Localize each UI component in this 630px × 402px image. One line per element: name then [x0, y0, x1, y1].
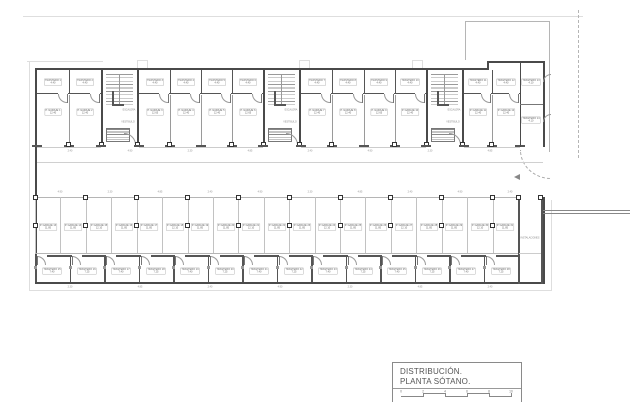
band-edge-1: [139, 147, 263, 148]
dim-top-5: 4.90: [368, 150, 373, 152]
dim-bot-4: 2.30: [348, 286, 353, 288]
storage-label: TRASTERO 197.40: [181, 268, 200, 275]
trastero-door-leaf-2-2: [393, 94, 394, 103]
parking-label: P. GARAJE 2712.10: [395, 224, 413, 231]
sideblock-div: [520, 104, 543, 105]
wall-top: [35, 68, 487, 70]
wall-ext-right-2: [543, 213, 630, 214]
dim-top-4: 2.40: [308, 150, 313, 152]
trastero-label: TRASTERO 64.40: [239, 79, 257, 86]
parking-label: P. GARAJE 2412.10: [318, 224, 336, 231]
trastero-door-arc-2-2: [384, 94, 393, 103]
boundary-topright-h: [465, 21, 550, 22]
storage-label: TRASTERO 237.40: [319, 268, 338, 275]
core-wall-l-2: [426, 69, 428, 147]
parking-col-top-2: [83, 195, 88, 200]
trastero-label: TRASTERO 84.40: [339, 79, 357, 86]
wall-bottom: [35, 282, 545, 284]
trastero-door-leaf-0-1: [99, 94, 100, 103]
vestibulo-label-0: VESTIBULO: [121, 121, 134, 123]
garaje-label: P. GARAJE 1212.40: [497, 109, 515, 116]
garaje-label: P. GARAJE 512.40: [208, 109, 225, 116]
property-line-top: [23, 16, 583, 17]
parking-label: P. GARAJE 2811.85: [420, 224, 438, 231]
parking-label: P. GARAJE 1812.10: [166, 224, 184, 231]
trastero-door-arc-2-1: [353, 94, 362, 103]
parking-col-mid-6: [185, 223, 190, 228]
ramp-curve: [520, 150, 551, 179]
roof-bump-l2: [412, 60, 413, 68]
parking-col-mid-8: [236, 223, 241, 228]
scale-segment: [445, 396, 467, 397]
parking-label: P. GARAJE 2211.85: [267, 224, 285, 231]
dim-park-4: 4.90: [258, 191, 263, 193]
trastero-door-arc-3-1: [509, 94, 518, 103]
trastero-label: TRASTERO 14.40: [44, 79, 62, 86]
parking-top: [35, 197, 518, 198]
dim-top-1: 4.90: [128, 150, 133, 152]
offset-bottom: [29, 290, 551, 291]
dim-top-0: 2.40: [68, 150, 73, 152]
dim-top-2: 2.30: [188, 150, 193, 152]
trastero-div-2-1: [332, 70, 333, 94]
garaje-div-0-1: [69, 95, 70, 145]
storage-door-arc-11: [417, 256, 426, 265]
vestibulo-label-2: VESTIBULO: [446, 121, 459, 123]
instalaciones-label: INSTALACIONES: [520, 237, 539, 239]
storage-label: TRASTERO 227.25: [284, 268, 303, 275]
trastero-door-leaf-1-3: [261, 94, 262, 103]
garaje-label: P. GARAJE 212.40: [77, 109, 94, 116]
storage-door-leaf-3: [141, 256, 142, 265]
parking-col-mid-16: [439, 223, 444, 228]
trastero-door-leaf-2-0: [330, 94, 331, 103]
storage-door-arc-4: [175, 256, 184, 265]
roof-bump-l1: [299, 60, 300, 68]
storage-label: TRASTERO 247.25: [353, 268, 372, 275]
dim-park-8: 4.90: [458, 191, 463, 193]
garaje-label: P. GARAJE 712.40: [308, 109, 325, 116]
offset-left: [29, 62, 30, 290]
roof-bump-l0: [137, 60, 138, 68]
storage-door-leaf-5: [210, 256, 211, 265]
garaje-div-2-1: [332, 95, 333, 145]
trastero-label: TRASTERO 44.40: [177, 79, 195, 86]
trastero-door-leaf-2-3: [424, 94, 425, 103]
trastero-label: TRASTERO 94.40: [370, 79, 388, 86]
storage-tick-8: [310, 266, 313, 269]
dim-park-5: 2.30: [308, 191, 313, 193]
storage-label: TRASTERO 187.25: [146, 268, 165, 275]
parking-col-top-12: [338, 195, 343, 200]
garaje-label: P. GARAJE 112.40: [45, 109, 62, 116]
storage-tick-9: [345, 266, 348, 269]
parking-col-mid-12: [338, 223, 343, 228]
storage-tick-4: [172, 266, 175, 269]
parking-label: P. GARAJE 2112.10: [242, 224, 260, 231]
parking-col-mid-10: [287, 223, 292, 228]
vestibulo-label-1: VESTIBULO: [283, 121, 296, 123]
trastero-label: TRASTERO 24.40: [76, 79, 94, 86]
storage-tick-11: [414, 266, 417, 269]
band-edge-0: [37, 147, 101, 148]
storage-door-arc-13: [486, 256, 495, 265]
storage-door-arc-8: [313, 256, 322, 265]
scale-segment: [467, 393, 489, 394]
dim-top-6: 2.30: [428, 150, 433, 152]
scale-segment: [489, 396, 511, 397]
trastero-div-2-3: [395, 70, 396, 94]
trastero-door-leaf-3-1: [518, 94, 519, 103]
trastero-door-arc-0-0: [58, 94, 67, 103]
dim-park-3: 2.40: [208, 191, 213, 193]
boundary-topright-v2: [549, 21, 550, 152]
storage-label: TRASTERO 267.25: [422, 268, 441, 275]
storage-tick-7: [276, 266, 279, 269]
storage-tick-10: [379, 266, 382, 269]
core-wall-r-2: [462, 69, 464, 147]
garaje-div-2-2: [364, 95, 365, 145]
storage-label: TRASTERO 277.40: [457, 268, 476, 275]
parking-div-15: [416, 197, 417, 253]
storage-door-arc-12: [451, 256, 460, 265]
garaje-div-3-1: [492, 95, 493, 145]
core-wall-r-0: [137, 69, 139, 147]
garaje-label: P. GARAJE 912.65: [371, 109, 388, 116]
title-block: DISTRIBUCIÓN. PLANTA SÓTANO. 0246810: [392, 362, 522, 402]
trastero-door-arc-3-0: [481, 94, 490, 103]
garaje-label: P. GARAJE 1112.40: [469, 109, 487, 116]
storage-door-arc-2: [106, 256, 115, 265]
core-wall-l-0: [101, 69, 103, 147]
stair-mid-0: [119, 74, 120, 105]
trastero-door-arc-1-3: [252, 94, 261, 103]
parking-div-5: [162, 197, 163, 253]
parking-col-top-8: [236, 195, 241, 200]
storage-door-leaf-6: [244, 256, 245, 265]
instal-col-2: [538, 195, 543, 200]
storage-label: TRASTERO 207.25: [215, 268, 234, 275]
garaje-label: P. GARAJE 612.65: [239, 109, 256, 116]
storage-door-arc-6: [244, 256, 253, 265]
trastero-door-leaf-3-0: [490, 94, 491, 103]
trastero-door-arc-2-0: [321, 94, 330, 103]
storage-tick-6: [241, 266, 244, 269]
storage-label: TRASTERO 157.40: [43, 268, 62, 275]
parking-label: P. GARAJE 3111.85: [496, 224, 514, 231]
scale-segment: [401, 396, 423, 397]
dim-park-2: 4.85: [158, 191, 163, 193]
garaje-div-2-3: [395, 95, 396, 145]
parking-label: P. GARAJE 1311.85: [39, 224, 57, 231]
escalera-label-0: ESCALERA: [123, 109, 136, 111]
instal-wall-left: [518, 197, 520, 284]
scale-tick-0: 0: [400, 390, 402, 393]
title-line2: PLANTA SÓTANO.: [400, 377, 521, 387]
storage-label: TRASTERO 167.25: [77, 268, 96, 275]
parking-label: P. GARAJE 1711.85: [140, 224, 158, 231]
garaje-div-1-1: [170, 95, 171, 145]
storage-door-leaf-0: [37, 256, 38, 265]
dim-park-7: 2.40: [408, 191, 413, 193]
storage-door-arc-1: [72, 256, 81, 265]
storage-door-leaf-2: [106, 256, 107, 265]
trastero-door-arc-2-3: [415, 94, 424, 103]
storage-label: TRASTERO 287.25: [491, 268, 510, 275]
storage-door-leaf-7: [279, 256, 280, 265]
storage-door-arc-0: [37, 256, 46, 265]
parking-label: P. GARAJE 1512.10: [90, 224, 108, 231]
trastero-door-arc-1-1: [190, 94, 199, 103]
storage-tick-1: [69, 266, 72, 269]
stair-landing-h-0: [112, 104, 124, 106]
dim-bot-6: 2.40: [488, 286, 493, 288]
parking-label: P. GARAJE 2611.85: [369, 224, 387, 231]
stair-landing-h-1: [274, 104, 286, 106]
trastero-label: TRASTERO 74.40: [308, 79, 326, 86]
trastero-div-3-1: [492, 70, 493, 94]
dim-park-9: 2.40: [508, 191, 513, 193]
storage-door-leaf-10: [382, 256, 383, 265]
roof-bump-1: [299, 60, 309, 61]
parking-label: P. GARAJE 2311.85: [293, 224, 311, 231]
stair-mid-2: [444, 74, 445, 105]
parking-label: P. GARAJE 3012.10: [471, 224, 489, 231]
above-wall-strip: [27, 61, 103, 62]
storage-door-leaf-12: [451, 256, 452, 265]
parking-label: P. GARAJE 1611.85: [115, 224, 133, 231]
wall-right-upper: [543, 61, 545, 147]
trastero-label: TRASTERO 104.40: [401, 79, 420, 86]
trastero-label: TRASTERO 114.40: [469, 79, 488, 86]
escalera-label-2: ESCALERA: [448, 109, 461, 111]
trastero-div-2-2: [364, 70, 365, 94]
dim-bot-3: 4.90: [278, 286, 283, 288]
parking-div-3: [111, 197, 112, 253]
roof-bump-2: [412, 60, 422, 61]
parking-label: P. GARAJE 2011.85: [217, 224, 235, 231]
core-wall-l-1: [263, 69, 265, 147]
trastero-label: TRASTERO 54.40: [208, 79, 226, 86]
parking-col-mid-18: [490, 223, 495, 228]
trastero-label: TRASTERO 124.40: [497, 79, 516, 86]
trastero-door-arc-0-1: [90, 94, 99, 103]
parking-div-17: [467, 197, 468, 253]
band-edge-2: [301, 147, 426, 148]
storage-door-arc-5: [210, 256, 219, 265]
trastero-div-1-1: [170, 70, 171, 94]
storage-tick-0: [34, 266, 37, 269]
wall-top-right: [487, 61, 545, 63]
parking-col-top-14: [388, 195, 393, 200]
trastero-door-arc-1-0: [159, 94, 168, 103]
aisle-line: [37, 162, 543, 163]
dim-top-3: 4.85: [248, 150, 253, 152]
trastero-door-leaf-1-1: [199, 94, 200, 103]
garaje-label: P. GARAJE 812.40: [340, 109, 357, 116]
storage-door-arc-7: [279, 256, 288, 265]
parking-col-mid-0: [33, 223, 38, 228]
storage-door-leaf-1: [72, 256, 73, 265]
parking-col-top-4: [134, 195, 139, 200]
boundary-topright-v1: [465, 21, 466, 60]
parking-label: P. GARAJE 1911.85: [191, 224, 209, 231]
storage-door-leaf-13: [486, 256, 487, 265]
title-divider: [393, 388, 521, 389]
trastero-label: TRASTERO 34.40: [146, 79, 164, 86]
floor-plan: ESCALERAVESTIBULOESCALERAVESTIBULOESCALE…: [0, 0, 630, 402]
trastero-div-0-1: [69, 70, 70, 94]
ramp-direction-arrow: [514, 174, 520, 180]
parking-label: P. GARAJE 2511.85: [344, 224, 362, 231]
garaje-label: P. GARAJE 412.40: [177, 109, 194, 116]
trastero-div-1-2: [201, 70, 202, 94]
dim-park-1: 2.30: [108, 191, 113, 193]
dim-bot-0: 2.30: [68, 286, 73, 288]
dim-bot-5: 4.85: [418, 286, 423, 288]
dim-top-7: 4.85: [488, 150, 493, 152]
parking-col-top-10: [287, 195, 292, 200]
scale-segment: [423, 393, 445, 394]
instal-col-1: [516, 195, 521, 200]
parking-div-9: [264, 197, 265, 253]
parking-div-1: [60, 197, 61, 253]
parking-label: P. GARAJE 2911.85: [445, 224, 463, 231]
trastero-door-leaf-2-1: [362, 94, 363, 103]
parking-label: P. GARAJE 1411.85: [64, 224, 82, 231]
roof-bump-0: [137, 60, 147, 61]
storage-door-leaf-4: [175, 256, 176, 265]
dim-park-6: 4.85: [358, 191, 363, 193]
garaje-label: P. GARAJE 312.65: [146, 109, 163, 116]
trastero-door-leaf-1-2: [230, 94, 231, 103]
parking-col-mid-14: [388, 223, 393, 228]
parking-col-top-6: [185, 195, 190, 200]
wall-ext-right-1: [543, 210, 630, 211]
trastero-door-leaf-0-0: [67, 94, 68, 103]
title-line1: DISTRIBUCIÓN.: [400, 367, 521, 377]
storage-door-arc-9: [348, 256, 357, 265]
parking-col-mid-2: [83, 223, 88, 228]
storage-tick-12: [448, 266, 451, 269]
garaje-div-1-2: [201, 95, 202, 145]
trastero-div-1-3: [232, 70, 233, 94]
dim-bot-2: 2.40: [208, 286, 213, 288]
storage-label: TRASTERO 257.40: [388, 268, 407, 275]
scale-tick-mark: [511, 393, 512, 397]
storage-door-leaf-8: [313, 256, 314, 265]
core-wall-r-1: [299, 69, 301, 147]
trastero-door-arc-1-2: [221, 94, 230, 103]
garaje-label: P. GARAJE 1012.40: [401, 109, 419, 116]
storage-door-leaf-9: [348, 256, 349, 265]
side-trastero-label: TRASTERO 144.10: [522, 117, 541, 124]
storage-tick-3: [138, 266, 141, 269]
storage-door-arc-3: [141, 256, 150, 265]
parking-col-top-16: [439, 195, 444, 200]
storage-label: TRASTERO 177.40: [112, 268, 131, 275]
escalera-label-1: ESCALERA: [285, 109, 298, 111]
instal-divider: [519, 253, 541, 254]
roof-bump-r0: [147, 60, 148, 68]
storage-label: TRASTERO 217.40: [250, 268, 269, 275]
parking-col-top-0: [33, 195, 38, 200]
parking-div-13: [365, 197, 366, 253]
parking-div-7: [213, 197, 214, 253]
property-line-right-dashed: [578, 10, 579, 158]
parking-col-top-18: [490, 195, 495, 200]
dim-bot-1: 4.85: [138, 286, 143, 288]
storage-tick-13: [483, 266, 486, 269]
roof-bump-r1: [309, 60, 310, 68]
parking-div-11: [315, 197, 316, 253]
storage-tick-5: [207, 266, 210, 269]
parking-bottom: [35, 253, 518, 254]
parking-col-mid-4: [134, 223, 139, 228]
stair-mid-1: [281, 74, 282, 105]
dim-park-0: 4.90: [58, 191, 63, 193]
trastero-door-leaf-1-0: [168, 94, 169, 103]
storage-tick-2: [103, 266, 106, 269]
stair-landing-h-2: [437, 104, 449, 106]
garaje-div-1-3: [232, 95, 233, 145]
storage-door-leaf-11: [417, 256, 418, 265]
side-trastero-label: TRASTERO 134.10: [522, 79, 541, 86]
roof-bump-r2: [422, 60, 423, 68]
band-edge-3: [464, 147, 520, 148]
storage-door-arc-10: [382, 256, 391, 265]
